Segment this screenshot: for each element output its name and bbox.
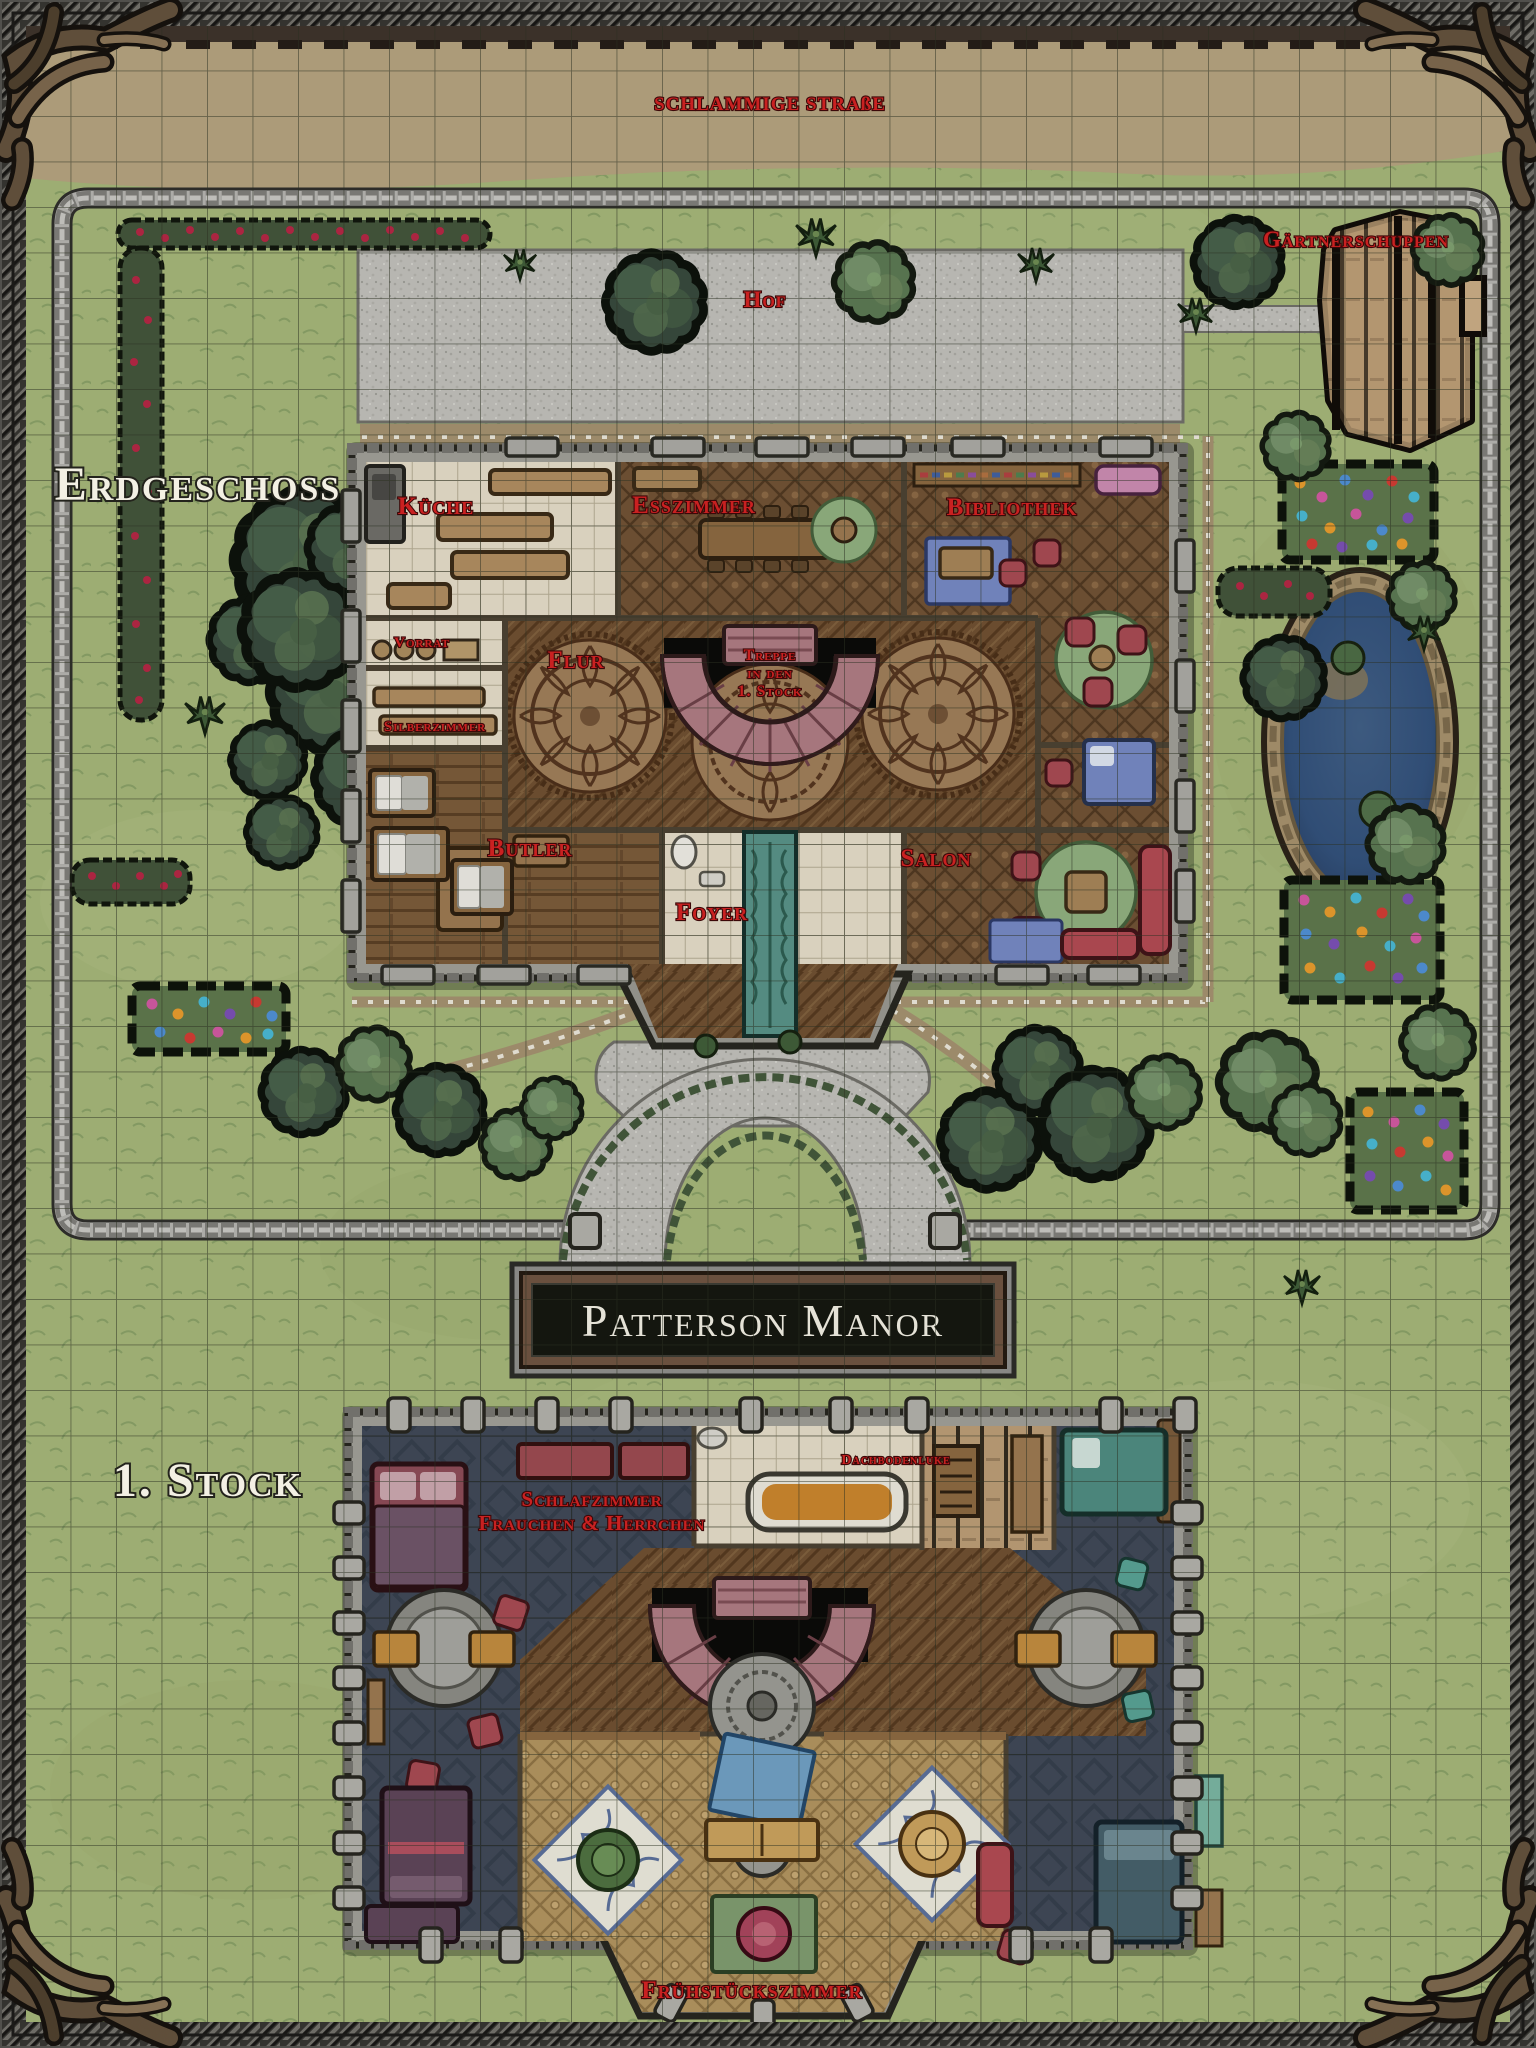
svg-text:Foyer: Foyer	[676, 899, 748, 926]
svg-text:Schlafzimmer: Schlafzimmer	[521, 1487, 662, 1511]
svg-text:1. Stock: 1. Stock	[113, 1454, 303, 1507]
svg-text:1. Stock: 1. Stock	[737, 683, 802, 700]
svg-text:Küche: Küche	[398, 493, 474, 520]
svg-text:Flur: Flur	[547, 647, 604, 674]
svg-text:Esszimmer: Esszimmer	[632, 492, 756, 519]
svg-text:Vorrat: Vorrat	[394, 635, 450, 651]
svg-text:in den: in den	[747, 665, 792, 682]
svg-text:Silberzimmer: Silberzimmer	[384, 719, 486, 735]
svg-text:Bibliothek: Bibliothek	[947, 494, 1078, 521]
svg-text:Erdgeschoss: Erdgeschoss	[55, 458, 341, 511]
svg-text:Butler: Butler	[488, 835, 573, 862]
svg-text:Treppe: Treppe	[744, 647, 797, 664]
svg-text:Frauchen & Herrchen: Frauchen & Herrchen	[479, 1511, 706, 1535]
svg-text:SCHLAMMIGE STRAßE: SCHLAMMIGE STRAßE	[654, 94, 886, 115]
svg-text:Salon: Salon	[901, 845, 972, 872]
svg-text:Dachbodenluke: Dachbodenluke	[841, 1453, 950, 1468]
svg-text:Frühstückszimmer: Frühstückszimmer	[641, 1977, 862, 2004]
svg-text:Hof: Hof	[743, 287, 786, 312]
svg-text:Gärtnerschuppen: Gärtnerschuppen	[1263, 227, 1449, 252]
